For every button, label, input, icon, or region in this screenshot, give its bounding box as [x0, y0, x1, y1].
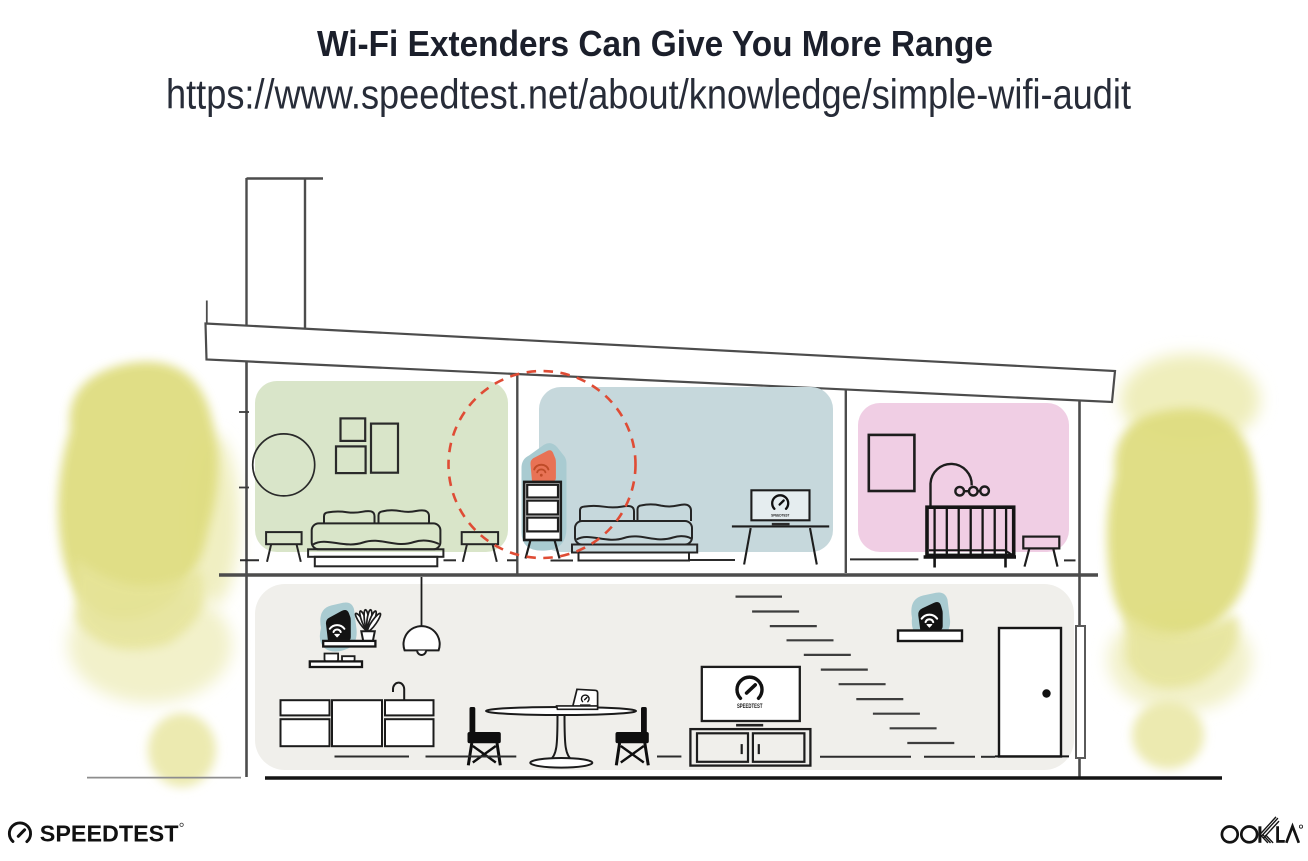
svg-text:https://www.speedtest.net/abou: https://www.speedtest.net/about/knowledg… — [166, 71, 1131, 118]
svg-text:SPEEDTEST: SPEEDTEST — [737, 703, 763, 710]
svg-text:SPEEDTEST: SPEEDTEST — [771, 514, 790, 518]
svg-text:Wi-Fi Extenders Can Give You M: Wi-Fi Extenders Can Give You More Range — [317, 23, 993, 64]
svg-text:SPEEDTEST: SPEEDTEST — [40, 820, 179, 846]
